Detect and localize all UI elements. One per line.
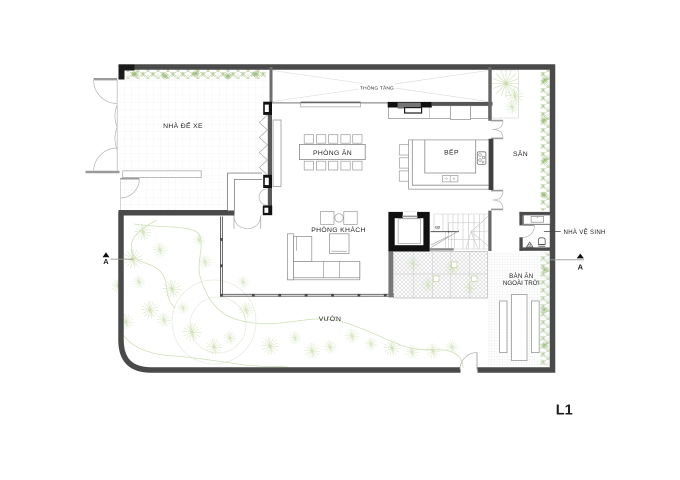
svg-text:PHÒNG ĂN: PHÒNG ĂN bbox=[313, 148, 352, 157]
svg-text:NGOÀI TRỜI: NGOÀI TRỜI bbox=[503, 280, 540, 287]
svg-text:THÔNG TẦNG: THÔNG TẦNG bbox=[360, 85, 394, 92]
svg-text:A: A bbox=[103, 257, 109, 266]
svg-text:L1: L1 bbox=[556, 403, 573, 419]
svg-text:PHÒNG KHÁCH: PHÒNG KHÁCH bbox=[311, 225, 365, 234]
svg-text:NHÀ VỆ SINH: NHÀ VỆ SINH bbox=[564, 228, 606, 236]
svg-text:BÀN ĂN: BÀN ĂN bbox=[509, 273, 533, 280]
svg-text:SÂN: SÂN bbox=[513, 149, 528, 158]
svg-text:A: A bbox=[578, 263, 584, 272]
svg-text:VƯỜN: VƯỜN bbox=[319, 314, 341, 323]
svg-text:up: up bbox=[435, 225, 441, 230]
svg-text:NHÀ ĐỂ XE: NHÀ ĐỂ XE bbox=[163, 121, 203, 130]
